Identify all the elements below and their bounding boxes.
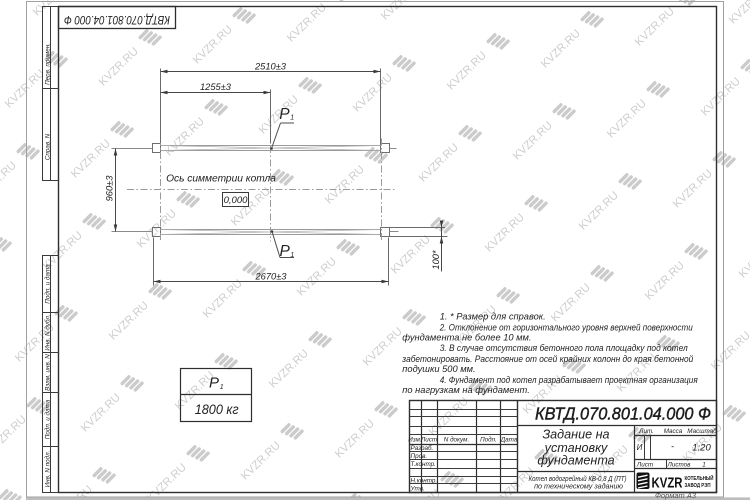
svg-text:подушки 500 мм.: подушки 500 мм.: [402, 364, 475, 374]
svg-text:-: -: [671, 442, 674, 452]
svg-text:1: 1: [702, 461, 706, 468]
svg-text:KVZR.RU: KVZR.RU: [323, 163, 367, 206]
svg-text:P: P: [279, 106, 290, 123]
svg-text:KVZR.RU: KVZR.RU: [0, 159, 19, 202]
svg-text:KVZR.RU: KVZR.RU: [473, 0, 517, 1]
svg-text:Формат А3: Формат А3: [655, 491, 697, 500]
svg-text:Взам. инв. N: Взам. инв. N: [44, 354, 51, 391]
svg-text:1: 1: [290, 115, 294, 122]
svg-text:KVZR.RU: KVZR.RU: [605, 97, 649, 140]
svg-text:Разраб.: Разраб.: [411, 444, 434, 452]
svg-text:3. В случае отсутствия бетонн: 3. В случае отсутствия бетонного пола пл…: [440, 343, 689, 353]
svg-text:Утв.: Утв.: [410, 485, 425, 492]
svg-text:Инв. N подл.: Инв. N подл.: [43, 451, 51, 488]
svg-text:1: 1: [290, 252, 294, 259]
svg-text:960±3: 960±3: [104, 175, 114, 202]
svg-text:KVZR.RU: KVZR.RU: [69, 137, 113, 180]
svg-text:Справ. N: Справ. N: [44, 133, 51, 160]
svg-text:KVZR.RU: KVZR.RU: [737, 237, 750, 280]
svg-text:KVZR.RU: KVZR.RU: [97, 45, 141, 88]
svg-text:KVZR.RU: KVZR.RU: [511, 119, 555, 162]
svg-text:фундамента не более 10 мм.: фундамента не более 10 мм.: [402, 333, 531, 343]
svg-text:забетонировать. Расстояние от: забетонировать. Расстояние от осей крайн…: [401, 354, 693, 364]
svg-text:KVZR.RU: KVZR.RU: [351, 71, 395, 114]
svg-text:100*: 100*: [431, 250, 441, 270]
svg-text:Пров.: Пров.: [411, 453, 428, 460]
svg-text:Лит.: Лит.: [638, 428, 654, 435]
svg-text:Ось симметрии котла: Ось симметрии котла: [166, 174, 276, 185]
svg-text:KVZR.RU: KVZR.RU: [361, 325, 405, 368]
svg-text:KVZR.RU: KVZR.RU: [633, 5, 677, 48]
svg-text:KVZR.RU: KVZR.RU: [577, 189, 621, 232]
svg-text:2. Отклонение от горизонтальн: 2. Отклонение от горизонтального уровня …: [439, 323, 693, 333]
svg-text:KVZR.RU: KVZR.RU: [239, 439, 283, 482]
svg-text:КВТД.070.801.04.000 Ф: КВТД.070.801.04.000 Ф: [535, 404, 711, 424]
svg-text:KVZR.RU: KVZR.RU: [333, 417, 377, 460]
svg-text:Н.контр.: Н.контр.: [411, 477, 438, 484]
svg-text:KVZR.RU: KVZR.RU: [191, 23, 235, 66]
svg-text:Инв. N дубл.: Инв. N дубл.: [43, 314, 51, 350]
svg-text:KVZR.RU: KVZR.RU: [145, 461, 189, 500]
svg-text:Лист: Лист: [420, 437, 437, 444]
svg-text:KVZR.RU: KVZR.RU: [0, 413, 29, 456]
svg-text:P: P: [280, 243, 291, 260]
svg-text:Листов: Листов: [667, 461, 692, 468]
svg-text:KVZR.RU: KVZR.RU: [699, 75, 743, 118]
svg-text:KVZR.RU: KVZR.RU: [379, 0, 423, 23]
svg-text:Дата: Дата: [500, 437, 518, 444]
svg-text:по техническому заданию: по техническому заданию: [534, 481, 623, 490]
svg-text:Подп. и дата: Подп. и дата: [43, 399, 51, 439]
svg-text:Масштаб: Масштаб: [687, 427, 717, 435]
svg-text:KVZR.RU: KVZR.RU: [727, 0, 750, 27]
svg-text:1255±3: 1255±3: [200, 82, 232, 92]
svg-text:KVZR.RU: KVZR.RU: [671, 167, 715, 210]
svg-text:0,000: 0,000: [224, 195, 248, 206]
svg-text:Подп.: Подп.: [480, 436, 497, 444]
svg-text:KVZR.RU: KVZR.RU: [285, 1, 329, 44]
svg-text:Лист: Лист: [636, 461, 653, 468]
svg-text:KVZR.RU: KVZR.RU: [483, 211, 527, 254]
svg-text:KVZR.RU: KVZR.RU: [643, 259, 687, 302]
svg-text:KVZR: KVZR: [652, 474, 683, 491]
svg-text:KVZR.RU: KVZR.RU: [201, 277, 245, 320]
svg-text:KVZR.RU: KVZR.RU: [79, 391, 123, 434]
svg-text:KVZR.RU: KVZR.RU: [267, 347, 311, 390]
svg-text:KVZR.RU: KVZR.RU: [417, 141, 461, 184]
svg-text:KVZR.RU: KVZR.RU: [3, 67, 47, 110]
svg-text:И: И: [637, 443, 643, 452]
svg-text:ЗАВОД РЭП: ЗАВОД РЭП: [685, 483, 711, 489]
svg-text:КВТД.070.801.04.000 Ф: КВТД.070.801.04.000 Ф: [64, 13, 170, 27]
svg-text:KVZR.RU: KVZR.RU: [135, 207, 179, 250]
svg-text:Задание на: Задание на: [542, 428, 609, 442]
svg-text:KVZR.RU: KVZR.RU: [295, 255, 339, 298]
svg-text:Подп. и дата: Подп. и дата: [43, 264, 51, 304]
svg-text:N докум.: N докум.: [444, 436, 469, 444]
svg-text:KVZR.RU: KVZR.RU: [539, 27, 583, 70]
svg-text:P: P: [209, 375, 219, 392]
svg-text:Изм.: Изм.: [408, 437, 421, 444]
svg-text:1: 1: [220, 384, 224, 391]
svg-text:2670±3: 2670±3: [255, 272, 288, 282]
svg-text:4. Фундамент под котел разраб: 4. Фундамент под котел разрабатывает про…: [440, 375, 698, 385]
svg-text:Перв. примен.: Перв. примен.: [44, 43, 51, 85]
svg-text:фундамента: фундамента: [537, 453, 614, 467]
svg-text:KVZR.RU: KVZR.RU: [389, 233, 433, 276]
svg-text:1:20: 1:20: [692, 442, 711, 453]
svg-text:Масса: Масса: [664, 428, 683, 435]
svg-text:2510±3: 2510±3: [254, 61, 287, 71]
svg-text:KVZR.RU: KVZR.RU: [549, 281, 593, 324]
svg-text:KVZR.RU: KVZR.RU: [709, 329, 750, 372]
svg-text:1. * Размер для справок.: 1. * Размер для справок.: [440, 311, 546, 321]
svg-text:1800 кг: 1800 кг: [195, 401, 239, 417]
svg-text:KVZR.RU: KVZR.RU: [107, 299, 151, 342]
svg-text:КОТЕЛЬНЫЙ: КОТЕЛЬНЫЙ: [685, 474, 714, 482]
svg-text:Т.контр.: Т.контр.: [411, 461, 436, 468]
svg-text:KVZR.RU: KVZR.RU: [445, 49, 489, 92]
svg-text:KVZR.RU: KVZR.RU: [163, 115, 207, 158]
svg-text:по нагрузкам на фундамент.: по нагрузкам на фундамент.: [402, 385, 529, 395]
